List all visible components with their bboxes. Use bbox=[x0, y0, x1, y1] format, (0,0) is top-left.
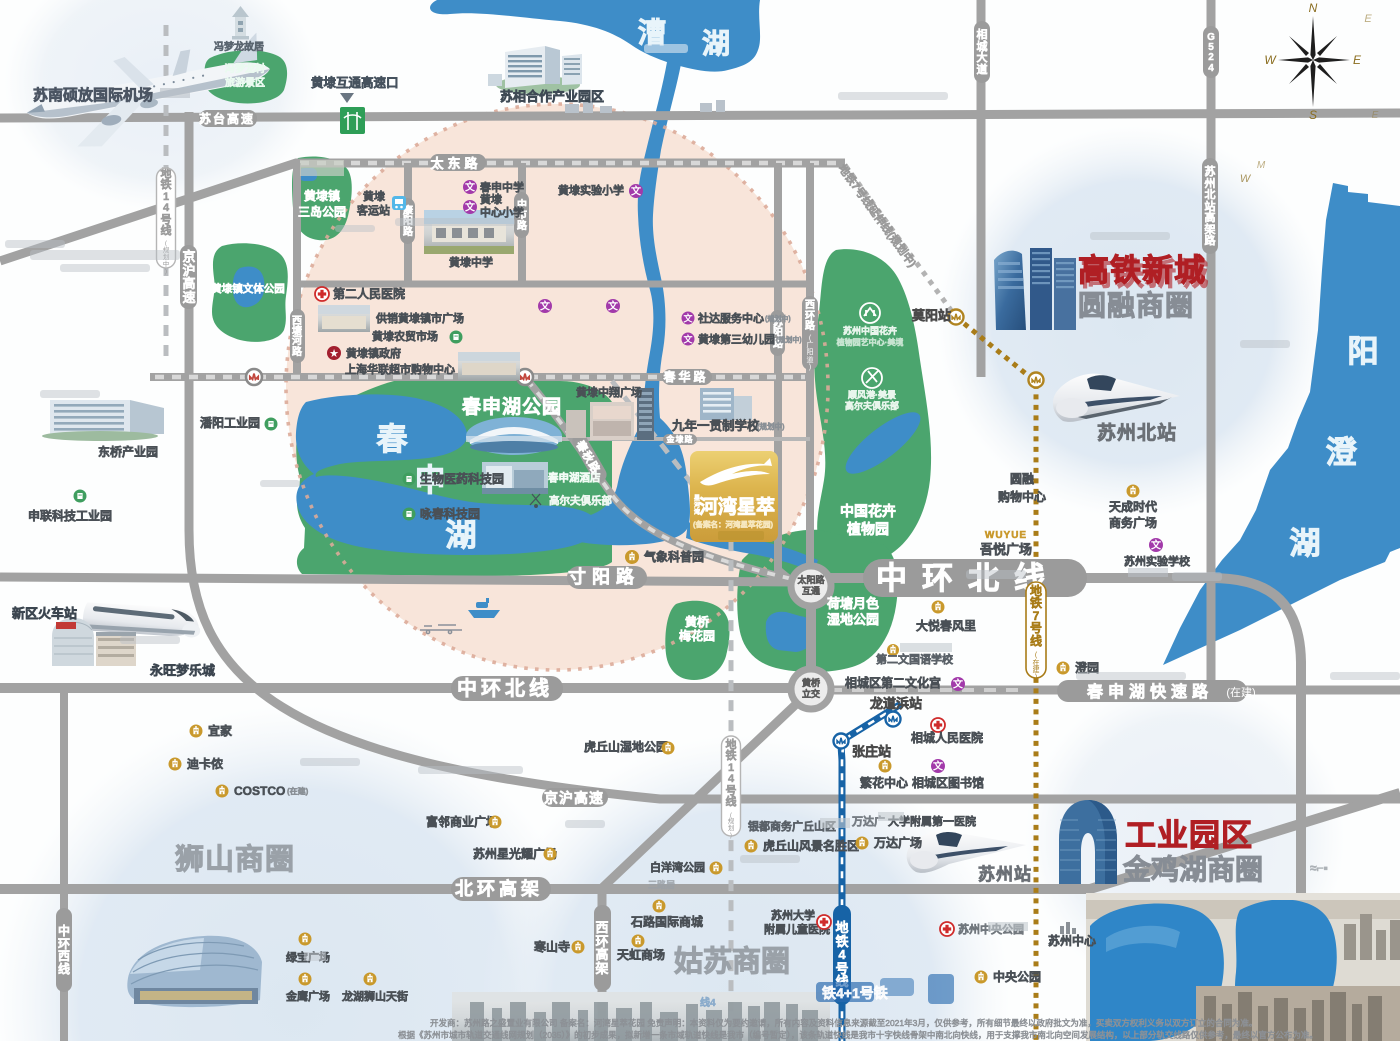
svg-text:阳: 阳 bbox=[807, 347, 814, 356]
svg-text:): ) bbox=[809, 364, 811, 371]
svg-text:号: 号 bbox=[1030, 620, 1042, 635]
svg-text:速: 速 bbox=[182, 290, 195, 305]
svg-text:铁: 铁 bbox=[161, 177, 172, 191]
svg-text:划: 划 bbox=[728, 823, 735, 832]
svg-text:万达广场: 万达广场 bbox=[873, 835, 922, 850]
svg-text:苏州大学: 苏州大学 bbox=[771, 908, 815, 922]
svg-text:寒山寺: 寒山寺 bbox=[533, 939, 570, 954]
svg-text:苏南硕放国际机场: 苏南硕放国际机场 bbox=[33, 86, 153, 104]
svg-text:永旺梦乐城: 永旺梦乐城 bbox=[149, 663, 215, 678]
svg-text:春申湖酒店: 春申湖酒店 bbox=[548, 471, 601, 484]
svg-text:西: 西 bbox=[58, 949, 70, 963]
svg-text:规: 规 bbox=[728, 816, 735, 825]
svg-text:4: 4 bbox=[728, 773, 735, 785]
svg-text:高尔夫俱乐部: 高尔夫俱乐部 bbox=[845, 400, 899, 411]
svg-text:莫阳站: 莫阳站 bbox=[911, 308, 951, 323]
svg-text:E: E bbox=[1364, 13, 1372, 25]
svg-text:架: 架 bbox=[1204, 222, 1216, 236]
svg-text:中央公园: 中央公园 bbox=[993, 969, 1041, 984]
svg-text:黄埭: 黄埭 bbox=[480, 192, 503, 206]
svg-text:路: 路 bbox=[403, 225, 414, 238]
svg-text:文: 文 bbox=[1151, 539, 1162, 552]
svg-text:架: 架 bbox=[594, 961, 608, 976]
svg-text:建: 建 bbox=[1033, 665, 1040, 674]
svg-text:龙道浜站: 龙道浜站 bbox=[870, 696, 922, 711]
svg-text:线4: 线4 bbox=[700, 996, 716, 1009]
svg-text:北: 北 bbox=[1205, 187, 1216, 201]
svg-text:购物中心: 购物中心 bbox=[998, 489, 1046, 504]
svg-text:圆融商圈: 圆融商圈 bbox=[1078, 290, 1194, 321]
svg-text:顺风港·美景: 顺风港·美景 bbox=[848, 389, 896, 400]
svg-text:河湾星萃: 河湾星萃 bbox=[699, 495, 775, 518]
svg-text:龙湖狮山天街: 龙湖狮山天街 bbox=[341, 989, 408, 1003]
svg-text:湖: 湖 bbox=[446, 518, 477, 553]
svg-text:新区火车站: 新区火车站 bbox=[12, 606, 77, 621]
svg-text:天虹商场: 天虹商场 bbox=[617, 947, 665, 962]
svg-text:线: 线 bbox=[58, 961, 70, 976]
svg-text:圆融: 圆融 bbox=[1010, 471, 1034, 486]
svg-text:苏: 苏 bbox=[1205, 164, 1216, 178]
svg-text:黄埭镇: 黄埭镇 bbox=[304, 188, 340, 203]
svg-text:旅游景区: 旅游景区 bbox=[225, 76, 265, 89]
svg-text:苏州北站: 苏州北站 bbox=[1097, 421, 1177, 444]
svg-text:线: 线 bbox=[726, 794, 737, 808]
svg-text:春申湖快速路: 春申湖快速路 bbox=[1086, 682, 1213, 701]
svg-text:吾悦广场: 吾悦广场 bbox=[980, 542, 1032, 557]
svg-text:地: 地 bbox=[726, 737, 737, 751]
svg-text:苏相合作产业园区: 苏相合作产业园区 bbox=[500, 89, 604, 104]
svg-text:铁: 铁 bbox=[726, 748, 737, 762]
svg-text:中: 中 bbox=[58, 923, 70, 938]
svg-text:大: 大 bbox=[977, 50, 988, 64]
svg-text:路: 路 bbox=[517, 219, 528, 232]
svg-text:文: 文 bbox=[682, 312, 693, 323]
svg-text:地: 地 bbox=[835, 920, 848, 935]
svg-text:湖: 湖 bbox=[1290, 526, 1321, 561]
svg-text:繁花中心: 繁花中心 bbox=[860, 775, 908, 790]
svg-text:太阳路: 太阳路 bbox=[796, 574, 825, 585]
svg-text:工业园区: 工业园区 bbox=[1125, 818, 1253, 853]
svg-text:京沪高速: 京沪高速 bbox=[544, 790, 604, 806]
svg-text:高铁新城: 高铁新城 bbox=[1081, 257, 1209, 292]
svg-text:文: 文 bbox=[631, 185, 642, 198]
svg-text:九年一贯制学校: 九年一贯制学校 bbox=[671, 418, 760, 433]
svg-text:中环北线: 中环北线 bbox=[457, 676, 553, 700]
svg-text:WUYUE: WUYUE bbox=[985, 530, 1027, 541]
svg-text:互通: 互通 bbox=[802, 585, 820, 596]
svg-text:黄埭互通高速口: 黄埭互通高速口 bbox=[311, 75, 399, 90]
svg-text:供销黄埭镇市广场: 供销黄埭镇市广场 bbox=[375, 311, 464, 325]
svg-text:澄: 澄 bbox=[1326, 435, 1358, 470]
svg-text:虎丘山湿地公园: 虎丘山湿地公园 bbox=[584, 739, 668, 754]
svg-text:E: E bbox=[1372, 110, 1379, 121]
svg-text:冯梦龙村: 冯梦龙村 bbox=[225, 62, 265, 75]
svg-text:黄埭中学: 黄埭中学 bbox=[449, 255, 493, 269]
svg-text:在: 在 bbox=[1033, 658, 1040, 667]
svg-text:天成时代: 天成时代 bbox=[1109, 499, 1157, 514]
svg-text:相: 相 bbox=[977, 27, 988, 41]
svg-text:★: ★ bbox=[329, 348, 339, 360]
svg-text:张庄站: 张庄站 bbox=[852, 744, 891, 759]
svg-text:黄埭农贸市场: 黄埭农贸市场 bbox=[372, 329, 438, 343]
svg-text:第二人民医院: 第二人民医院 bbox=[333, 286, 405, 301]
svg-text:植物园: 植物园 bbox=[846, 521, 889, 537]
svg-text:铁4+1号铁: 铁4+1号铁 bbox=[822, 985, 888, 1001]
svg-text:寸阳路: 寸阳路 bbox=[568, 566, 640, 587]
svg-text:(备案名：河湾星萃花园): (备案名：河湾星萃花园) bbox=[693, 519, 773, 529]
svg-text:根据《苏州市城市轨道交通线网规划（2035）》的初步成果，拟: 根据《苏州市城市轨道交通线网规划（2035）》的初步成果，拟新增一条市域轨道快线… bbox=[398, 1030, 1318, 1040]
svg-text:虎丘山风景名胜区: 虎丘山风景名胜区 bbox=[763, 838, 859, 853]
svg-text:E: E bbox=[1353, 53, 1362, 67]
svg-text:生物医药科技园: 生物医药科技园 bbox=[420, 471, 504, 486]
svg-text:COSTCO: COSTCO bbox=[234, 784, 285, 798]
svg-text:(在建): (在建) bbox=[1226, 685, 1255, 699]
svg-text:西: 西 bbox=[595, 920, 608, 935]
svg-text:春: 春 bbox=[377, 422, 408, 457]
svg-text:黄埭第三幼儿园: 黄埭第三幼儿园 bbox=[698, 332, 775, 346]
svg-text:(在建): (在建) bbox=[287, 786, 309, 796]
svg-text:W: W bbox=[1264, 53, 1277, 67]
svg-text:荷塘月色: 荷塘月色 bbox=[826, 596, 879, 611]
svg-text:W: W bbox=[1240, 173, 1252, 185]
svg-text:高尔夫俱乐部: 高尔夫俱乐部 bbox=[549, 494, 612, 507]
svg-text:2: 2 bbox=[1208, 52, 1214, 63]
svg-text:高: 高 bbox=[595, 947, 608, 962]
svg-text:高: 高 bbox=[1205, 210, 1216, 224]
svg-text:站: 站 bbox=[1205, 199, 1216, 213]
svg-text:≈⌐▪: ≈⌐▪ bbox=[1310, 861, 1328, 875]
svg-text:线: 线 bbox=[1030, 633, 1042, 648]
svg-text:社达服务中心: 社达服务中心 bbox=[697, 311, 764, 325]
svg-text:狮山商圈: 狮山商圈 bbox=[175, 843, 295, 876]
svg-text:湾: 湾 bbox=[694, 508, 700, 516]
svg-text:中心小学: 中心小学 bbox=[480, 205, 524, 219]
svg-text:文: 文 bbox=[682, 333, 693, 344]
svg-text:苏台高速: 苏台高速 bbox=[199, 111, 255, 126]
svg-text:黄埭实验小学: 黄埭实验小学 bbox=[558, 183, 624, 197]
svg-text:相城区第二文化宫: 相城区第二文化宫 bbox=[845, 675, 941, 690]
svg-text:城: 城 bbox=[977, 39, 988, 53]
svg-text:黄埭中翔广场: 黄埭中翔广场 bbox=[576, 385, 642, 399]
svg-text:商务广场: 商务广场 bbox=[1109, 515, 1157, 530]
svg-text:N: N bbox=[1309, 1, 1318, 15]
svg-text:三路居: 三路居 bbox=[648, 879, 675, 890]
svg-text:第二文国语学校: 第二文国语学校 bbox=[876, 652, 954, 666]
svg-text:河: 河 bbox=[292, 335, 302, 347]
svg-text:河: 河 bbox=[694, 501, 700, 509]
svg-text:西: 西 bbox=[805, 299, 815, 311]
svg-text:4: 4 bbox=[1208, 63, 1214, 74]
svg-text:星: 星 bbox=[694, 494, 700, 502]
svg-text:铁: 铁 bbox=[1030, 595, 1042, 610]
svg-text:文: 文 bbox=[465, 201, 476, 214]
svg-text:客运站: 客运站 bbox=[356, 203, 390, 217]
svg-text:文: 文 bbox=[953, 678, 964, 691]
svg-text:阳: 阳 bbox=[1348, 334, 1379, 369]
svg-text:京: 京 bbox=[182, 249, 195, 264]
svg-text:道: 道 bbox=[977, 62, 988, 76]
svg-text:申联科技工业园: 申联科技工业园 bbox=[28, 508, 112, 523]
svg-text:白洋湾公园: 白洋湾公园 bbox=[650, 860, 705, 874]
svg-text:三岛公园: 三岛公园 bbox=[298, 204, 346, 219]
svg-text:黄桥: 黄桥 bbox=[685, 614, 710, 629]
svg-text:文: 文 bbox=[608, 300, 619, 313]
svg-text:漕: 漕 bbox=[638, 17, 666, 48]
svg-text:东桥产业园: 东桥产业园 bbox=[98, 444, 158, 459]
svg-text:金鹰广场: 金鹰广场 bbox=[285, 989, 330, 1003]
svg-text:M: M bbox=[1257, 160, 1266, 171]
svg-text:黄埭镇文体公园: 黄埭镇文体公园 bbox=[211, 282, 285, 295]
svg-text:线: 线 bbox=[161, 223, 172, 237]
svg-text:4: 4 bbox=[838, 947, 846, 962]
svg-text:(规划中): (规划中) bbox=[757, 421, 785, 431]
svg-text:(规划中): (规划中) bbox=[776, 335, 802, 344]
svg-text:黄埭镇政府: 黄埭镇政府 bbox=[346, 346, 401, 360]
svg-text:广: 广 bbox=[807, 340, 814, 349]
svg-text:立交: 立交 bbox=[802, 688, 820, 699]
svg-text:文: 文 bbox=[933, 760, 944, 773]
svg-text:路: 路 bbox=[805, 319, 816, 332]
svg-text:苏州站: 苏州站 bbox=[978, 864, 1032, 884]
svg-text:相城人民医院: 相城人民医院 bbox=[911, 730, 983, 745]
svg-text:梅花园: 梅花园 bbox=[679, 628, 715, 643]
svg-text:姑苏商圈: 姑苏商圈 bbox=[674, 945, 790, 978]
svg-text:): ) bbox=[165, 268, 167, 275]
svg-text:潘阳工业园: 潘阳工业园 bbox=[200, 415, 260, 430]
svg-text:开发商：苏州路之盛置业有限公司 备案名：河湾星萃花园 免责声: 开发商：苏州路之盛置业有限公司 备案名：河湾星萃花园 免责声明：本资料仅为要约邀… bbox=[430, 1018, 1257, 1028]
svg-text:4: 4 bbox=[163, 202, 170, 214]
svg-text:湖: 湖 bbox=[702, 28, 730, 59]
svg-text:太东路: 太东路 bbox=[429, 156, 481, 171]
svg-text:上海华联超市购物中心: 上海华联超市购物中心 bbox=[345, 362, 455, 376]
svg-text:石路国际商城: 石路国际商城 bbox=[630, 914, 703, 929]
svg-text:高: 高 bbox=[182, 276, 195, 291]
svg-text:道: 道 bbox=[807, 355, 814, 364]
svg-text:迪卡侬: 迪卡侬 bbox=[187, 756, 224, 771]
svg-text:富邻商业广场: 富邻商业广场 bbox=[426, 814, 498, 829]
svg-text:相城区图书馆: 相城区图书馆 bbox=[912, 775, 984, 790]
svg-text:大悦春风里: 大悦春风里 bbox=[916, 618, 976, 633]
svg-text:黄桥: 黄桥 bbox=[802, 677, 821, 688]
svg-text:冯梦龙故居: 冯梦龙故居 bbox=[214, 40, 264, 53]
svg-text:春申中学: 春申中学 bbox=[480, 180, 524, 194]
svg-text:植物园艺中心·美境: 植物园艺中心·美境 bbox=[836, 337, 904, 347]
svg-text:路: 路 bbox=[1205, 233, 1217, 247]
svg-text:苏州中国花卉: 苏州中国花卉 bbox=[843, 325, 897, 336]
svg-text:春华路: 春华路 bbox=[662, 369, 708, 384]
svg-text:文: 文 bbox=[540, 300, 551, 313]
svg-text:S: S bbox=[1309, 108, 1317, 122]
svg-text:春申湖公园: 春申湖公园 bbox=[462, 395, 562, 418]
svg-text:金鸡湖商圈: 金鸡湖商圈 bbox=[1122, 853, 1263, 885]
svg-text:湿地公园: 湿地公园 bbox=[827, 612, 879, 627]
svg-text:气象科普园: 气象科普园 bbox=[643, 549, 704, 564]
svg-text:宜家: 宜家 bbox=[208, 723, 233, 738]
svg-text:北环高架: 北环高架 bbox=[455, 878, 543, 899]
svg-text:路: 路 bbox=[292, 345, 303, 358]
svg-text:苏州中心: 苏州中心 bbox=[1048, 933, 1096, 948]
svg-text:黄埭: 黄埭 bbox=[363, 189, 386, 203]
svg-text:(规划中): (规划中) bbox=[765, 314, 791, 323]
svg-text:中: 中 bbox=[163, 259, 170, 268]
svg-text:苏州实验学校: 苏州实验学校 bbox=[1124, 554, 1191, 568]
svg-text:咏春科技园: 咏春科技园 bbox=[420, 506, 480, 521]
svg-text:金埭路: 金埭路 bbox=[666, 434, 694, 444]
svg-text:文: 文 bbox=[465, 181, 476, 194]
svg-text:中国花卉: 中国花卉 bbox=[840, 503, 896, 519]
